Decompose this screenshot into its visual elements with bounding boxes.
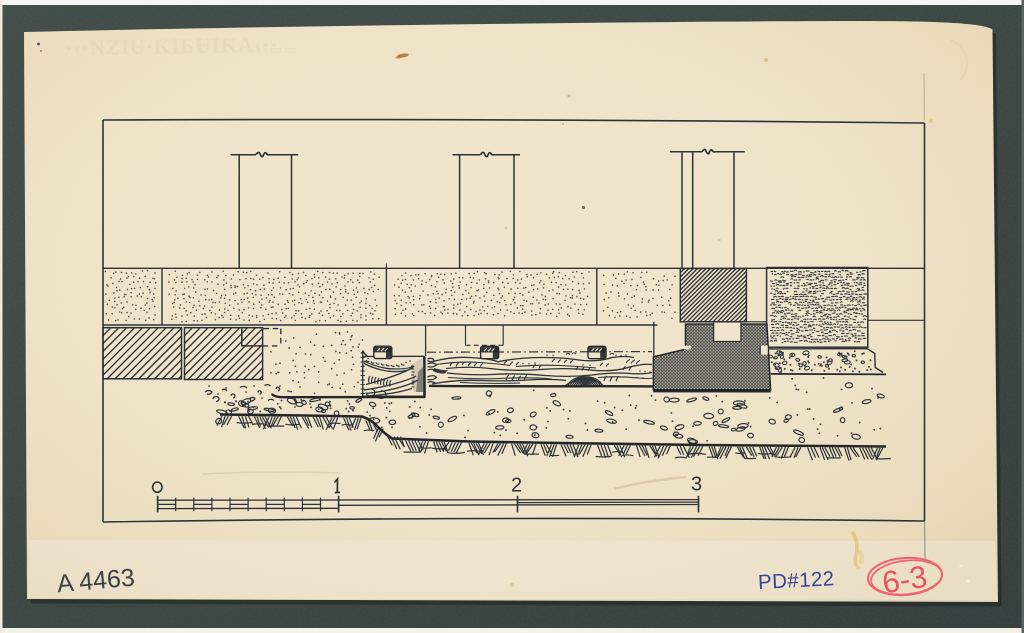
svg-text:2: 2 [511, 475, 522, 497]
svg-text:3: 3 [691, 474, 702, 496]
svg-text:·‹·ΝΖΙɄ·ƘІБɄІƘΑ‹··: ·‹·ΝΖΙɄ·ƘІБɄІƘΑ‹·· [65, 32, 278, 60]
svg-text:PD#122: PD#122 [757, 567, 835, 594]
svg-text:◦◦◦▭▭: ◦◦◦▭▭ [250, 42, 299, 58]
svg-text:6-3: 6-3 [880, 559, 930, 601]
